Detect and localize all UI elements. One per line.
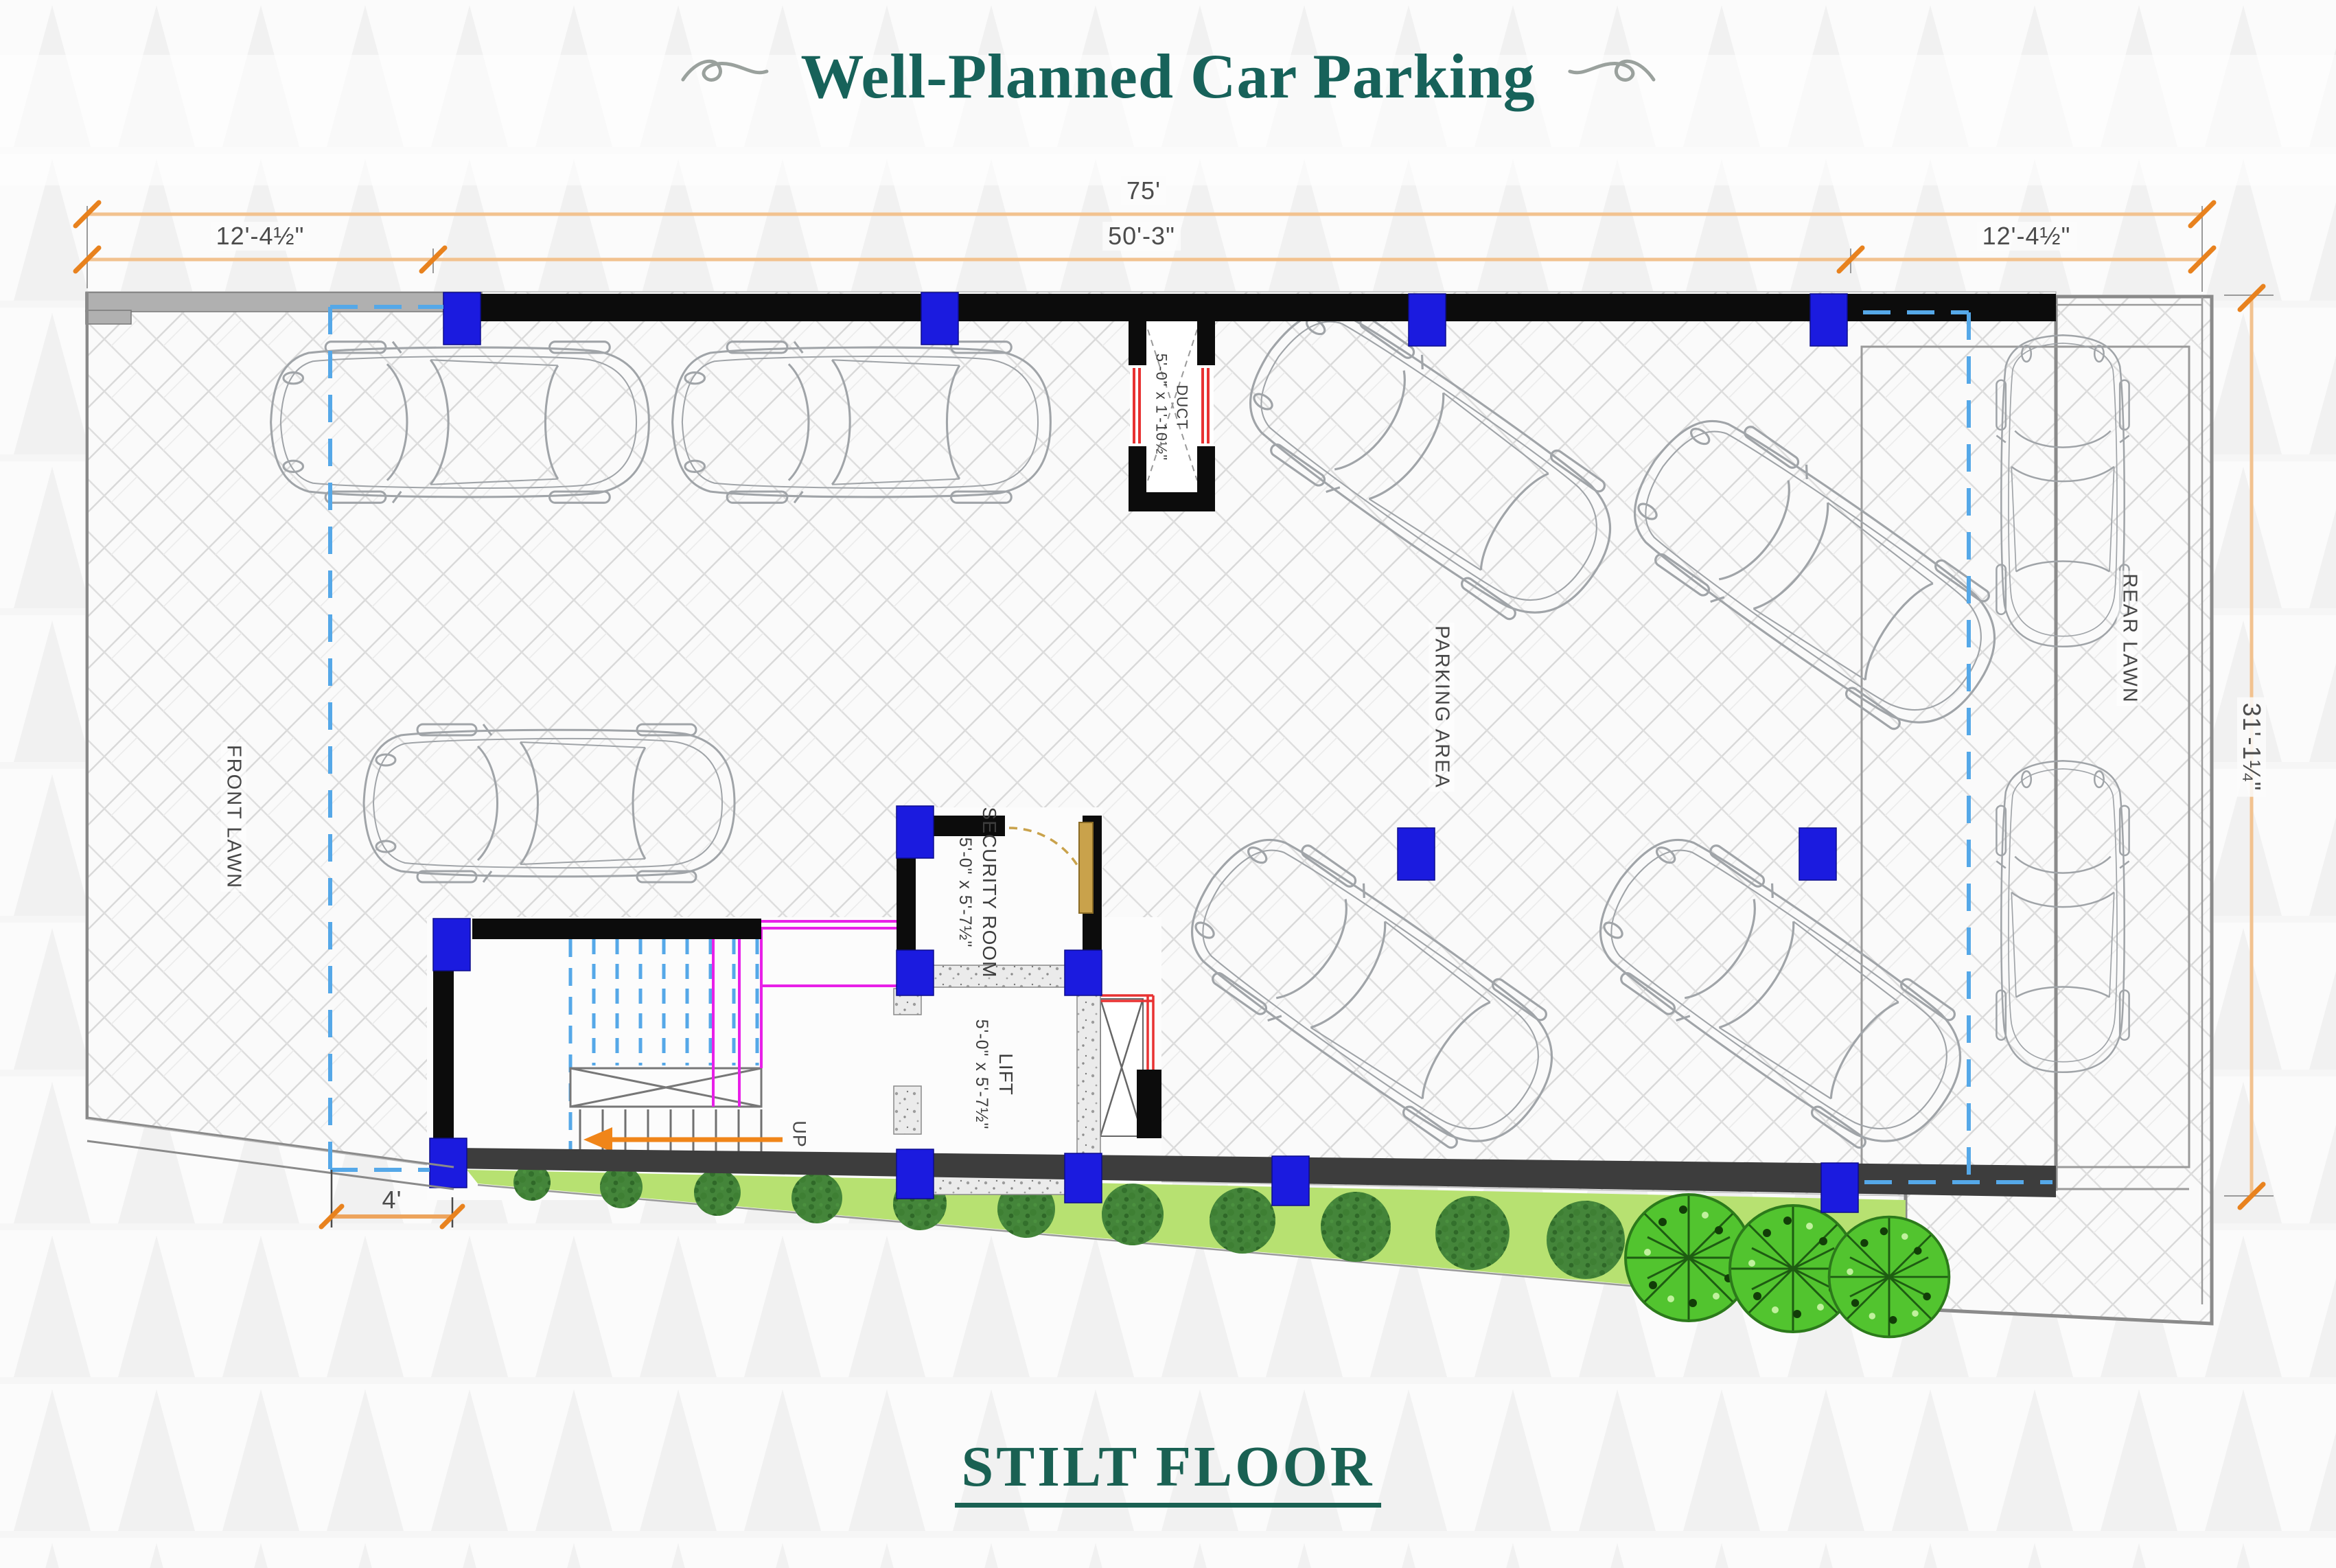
column — [897, 806, 934, 858]
lift-name: LIFT — [993, 1053, 1019, 1096]
floor-title: STILT FLOOR — [955, 1435, 1382, 1508]
column — [1272, 1156, 1309, 1206]
right-flourish-icon — [1567, 52, 1656, 100]
dimension-label-building-width: 50'-3" — [1102, 222, 1181, 251]
security-room-name: SECURITY ROOM — [976, 807, 1002, 978]
column — [1799, 828, 1836, 880]
rear-lawn-label: REAR LAWN — [2117, 570, 2142, 706]
column — [1409, 294, 1446, 346]
column — [921, 292, 958, 345]
front-lawn-label: FRONT LAWN — [221, 742, 246, 892]
column — [430, 1138, 467, 1188]
duct-label: DUCT 5'-0" x 1'-10½" — [1151, 354, 1192, 461]
parking-area-label: PARKING AREA — [1429, 623, 1455, 792]
column — [1810, 294, 1847, 346]
column — [1065, 1153, 1102, 1203]
lift-size: 5'-0" x 5'-7½" — [969, 1019, 993, 1130]
column — [897, 1149, 934, 1199]
stilt-floor-plan-page: Well-Planned Car Parking 75' 12'-4½" 50'… — [0, 0, 2336, 1568]
dimension-label-rear-setback: 12'-4½" — [1977, 222, 2077, 251]
dimension-label-front-setback: 12'-4½" — [211, 222, 310, 251]
dimension-label-overall-depth: 31'-1¼" — [2237, 697, 2266, 797]
tree-icon — [1829, 1217, 1950, 1337]
lift-label: LIFT 5'-0" x 5'-7½" — [969, 1019, 1019, 1130]
security-room-size: 5'-0" x 5'-7½" — [953, 838, 976, 948]
page-title: Well-Planned Car Parking — [800, 40, 1535, 113]
duct-size: 5'-0" x 1'-10½" — [1151, 354, 1172, 461]
column — [433, 919, 470, 971]
column — [1398, 828, 1435, 880]
stairs-up-label: UP — [789, 1120, 810, 1148]
dimension-label-ramp-width: 4' — [377, 1186, 408, 1214]
dimension-label-overall-width: 75' — [1121, 176, 1166, 205]
column — [1821, 1163, 1858, 1212]
duct-name: DUCT — [1172, 384, 1192, 429]
door-panel — [1079, 822, 1093, 913]
column — [897, 950, 934, 995]
security-room-label: SECURITY ROOM 5'-0" x 5'-7½" — [953, 807, 1002, 978]
column — [443, 292, 481, 345]
left-flourish-icon — [680, 52, 769, 100]
column — [1065, 950, 1102, 995]
page-header: Well-Planned Car Parking — [680, 40, 1656, 113]
floor-title-wrap: STILT FLOOR — [955, 1433, 1382, 1500]
